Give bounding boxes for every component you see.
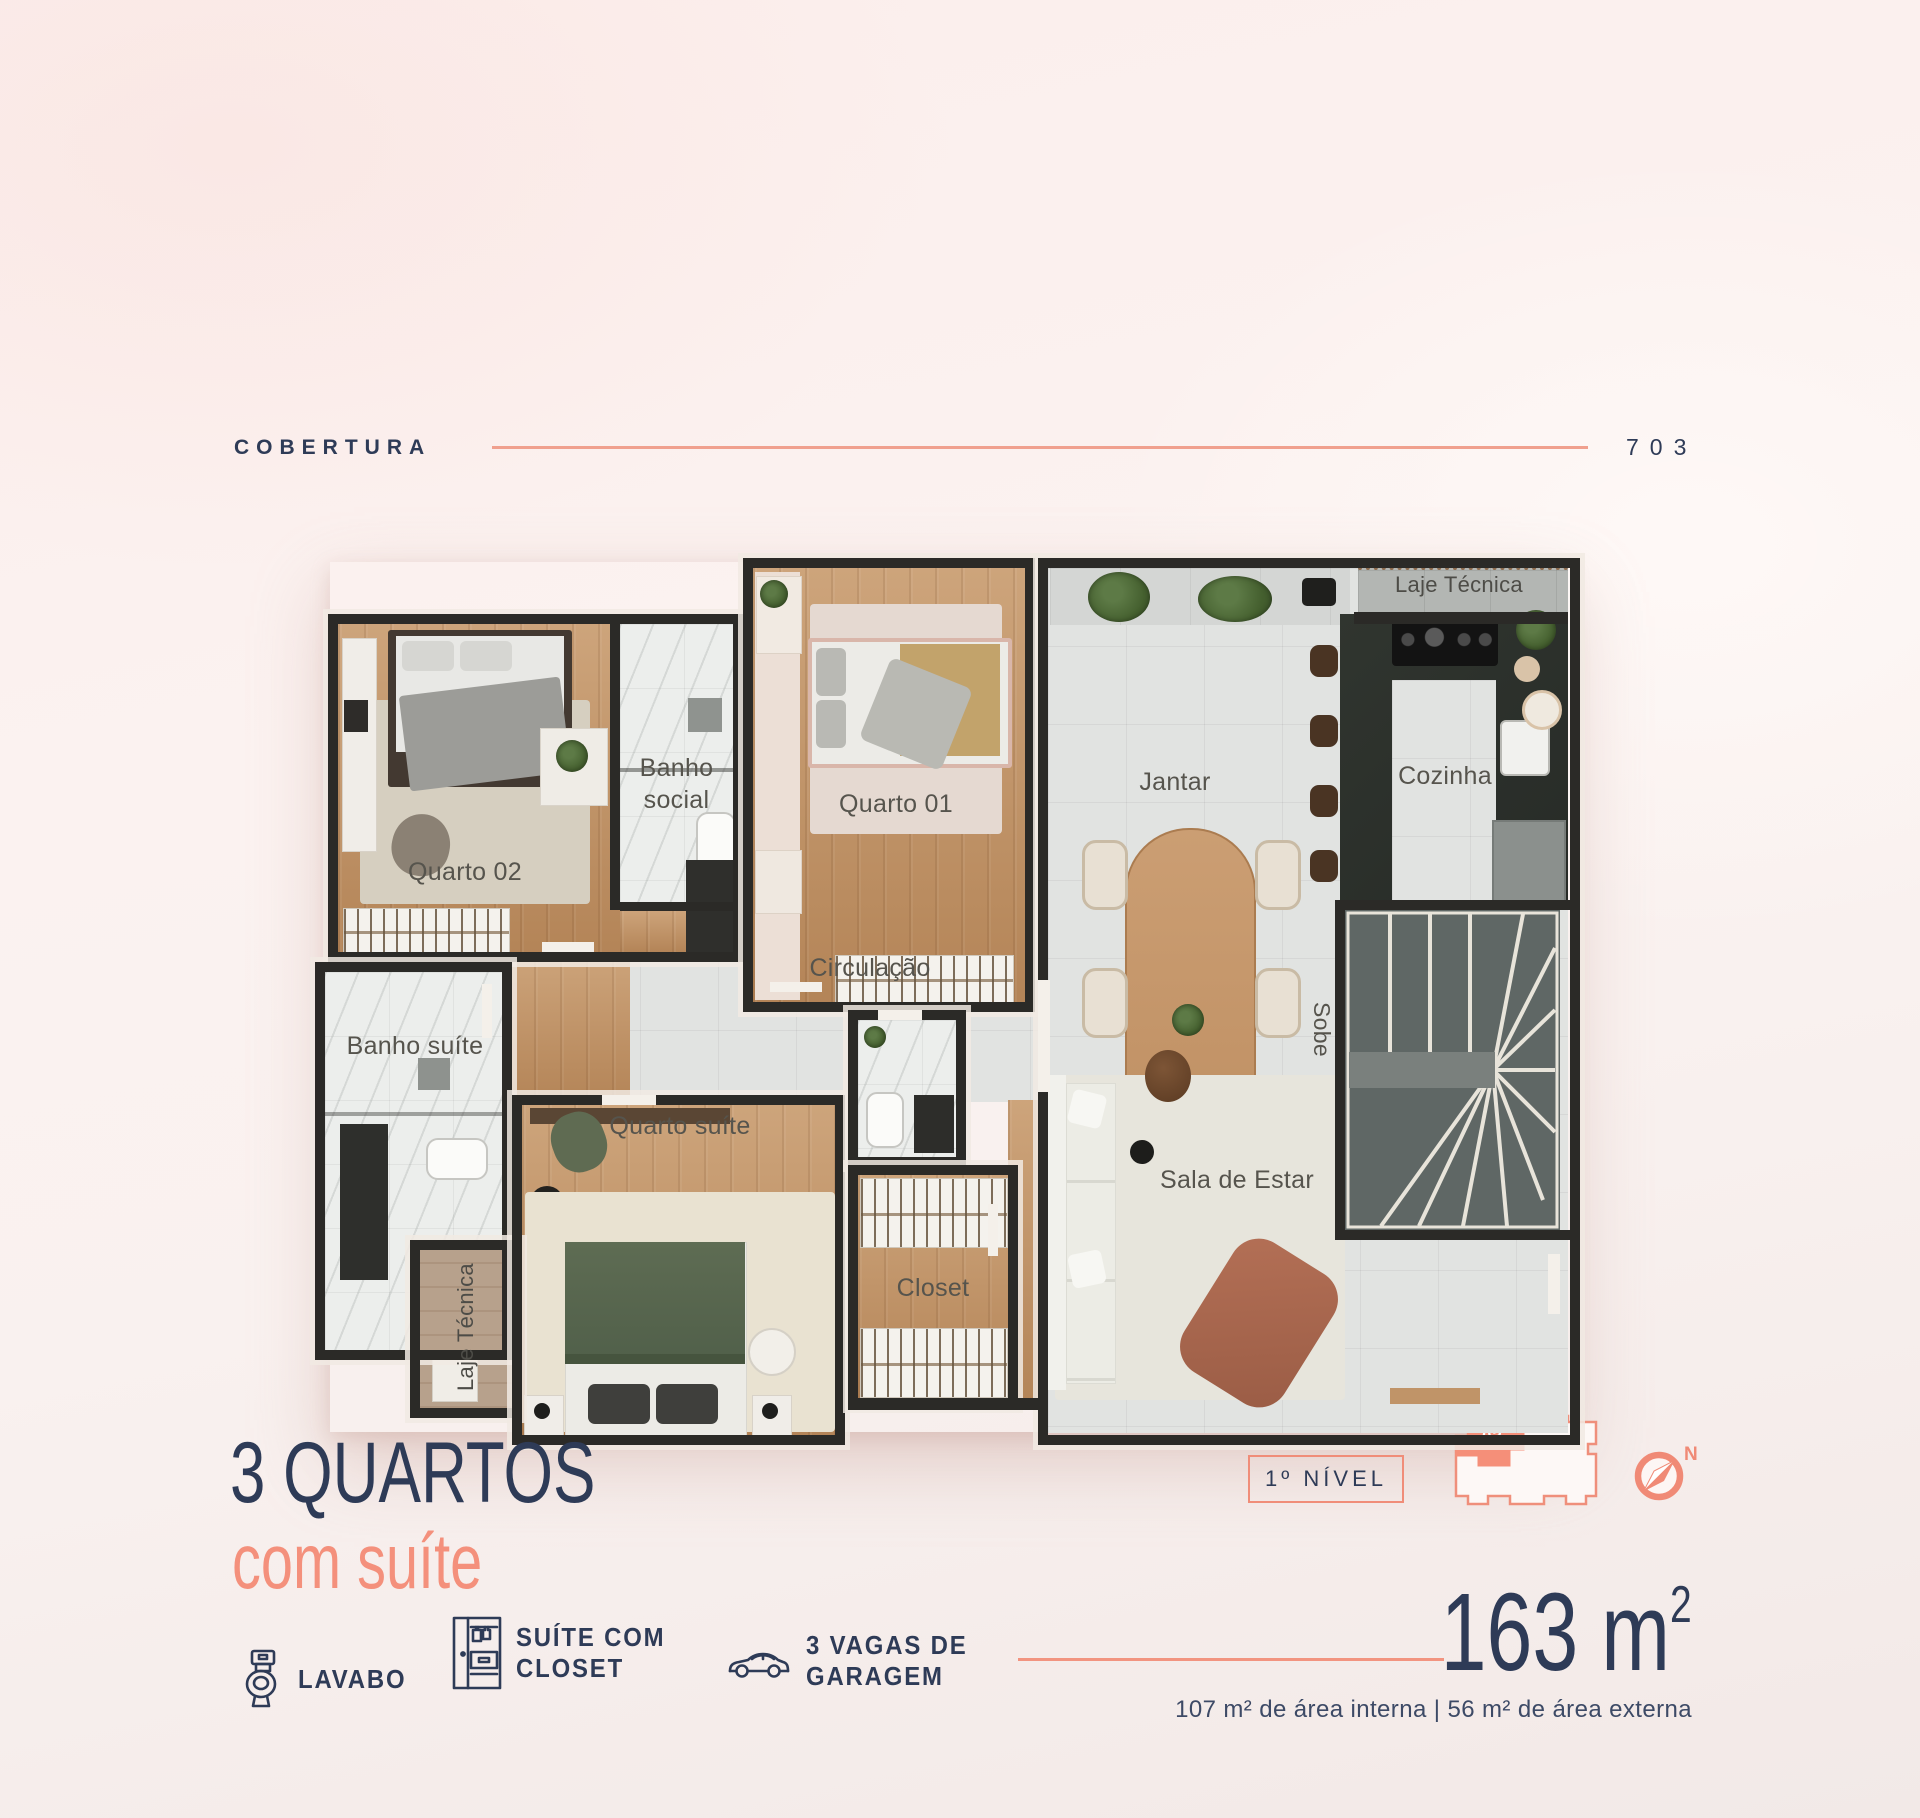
- door-suite: [602, 1095, 656, 1105]
- feature-suite-com-closet: SUÍTE COMCLOSET: [452, 1616, 678, 1690]
- label-sobe: Sobe: [1308, 984, 1335, 1074]
- compass-icon: N: [1628, 1438, 1702, 1506]
- area-superscript: 2: [1670, 1576, 1692, 1634]
- feature-label: CLOSET: [516, 1653, 624, 1683]
- label-banho-social-2: social: [620, 786, 733, 815]
- feature-label: LAVABO: [298, 1664, 406, 1694]
- label-banho-social-1: Banho: [620, 754, 733, 783]
- door-quarto01: [770, 982, 822, 992]
- label-quarto01: Quarto 01: [796, 790, 996, 819]
- label-cozinha: Cozinha: [1390, 762, 1500, 791]
- feature-lavabo: LAVABO: [238, 1648, 416, 1710]
- area-details: 107 m² de área interna | 56 m² de área e…: [932, 1696, 1692, 1724]
- wall-banho-hall: [620, 902, 733, 911]
- compass-north-label: N: [1684, 1444, 1698, 1465]
- feature-vagas-garagem: 3 VAGAS DEGARAGEM: [726, 1630, 982, 1692]
- header-divider-line: [492, 446, 1588, 449]
- feature-label: GARAGEM: [806, 1661, 944, 1691]
- wall-q02-banho: [610, 614, 620, 910]
- label-closet: Closet: [870, 1274, 996, 1303]
- label-laje-tecnica-bottom: Laje Técnica: [453, 1247, 479, 1407]
- label-banho-suite: Banho suíte: [330, 1032, 500, 1061]
- label-jantar: Jantar: [1100, 768, 1250, 797]
- feature-label: SUÍTE COM: [516, 1622, 665, 1652]
- feature-label: 3 VAGAS DE: [806, 1630, 968, 1660]
- header-unit-number: 703: [1626, 434, 1697, 461]
- wall-quarto01-block: [743, 558, 1035, 1012]
- door-quarto02: [542, 942, 594, 952]
- hall-left-floor: [508, 952, 630, 1102]
- level-badge: 1º NÍVEL: [1248, 1455, 1404, 1503]
- door-banho-suite: [482, 984, 492, 1038]
- wardrobe-icon: [452, 1616, 502, 1690]
- level-badge-label: 1º NÍVEL: [1265, 1466, 1387, 1492]
- door-closet: [988, 1204, 998, 1256]
- door-under-stairs: [1548, 1254, 1560, 1314]
- wall-bridge-bottom: [848, 1398, 1048, 1410]
- toilet-icon: [238, 1648, 284, 1710]
- label-quarto02: Quarto 02: [360, 858, 570, 887]
- plan-subtitle: com suíte: [232, 1522, 482, 1600]
- opening-corridor-living: [1038, 980, 1050, 1092]
- label-quarto-suite: Quarto suíte: [558, 1112, 802, 1141]
- wall-lavabo-block: [848, 1010, 966, 1167]
- car-icon: [726, 1639, 792, 1683]
- area-value: 163 m: [1441, 1571, 1670, 1694]
- label-circulacao: Circulação: [740, 954, 1000, 983]
- total-area: 163 m2: [1172, 1578, 1692, 1688]
- door-lavabo: [878, 1010, 922, 1020]
- plan-title: 3 QUARTOS: [230, 1430, 595, 1516]
- wall-suite-block: [512, 1095, 845, 1445]
- label-sala-de-estar: Sala de Estar: [1152, 1166, 1322, 1195]
- floor-plan: Jantar Laje Técnica Cozinha Quarto 01 Ba…: [300, 552, 1590, 1447]
- label-laje-tecnica-top: Laje Técnica: [1358, 572, 1560, 598]
- header-section-label: COBERTURA: [234, 436, 431, 460]
